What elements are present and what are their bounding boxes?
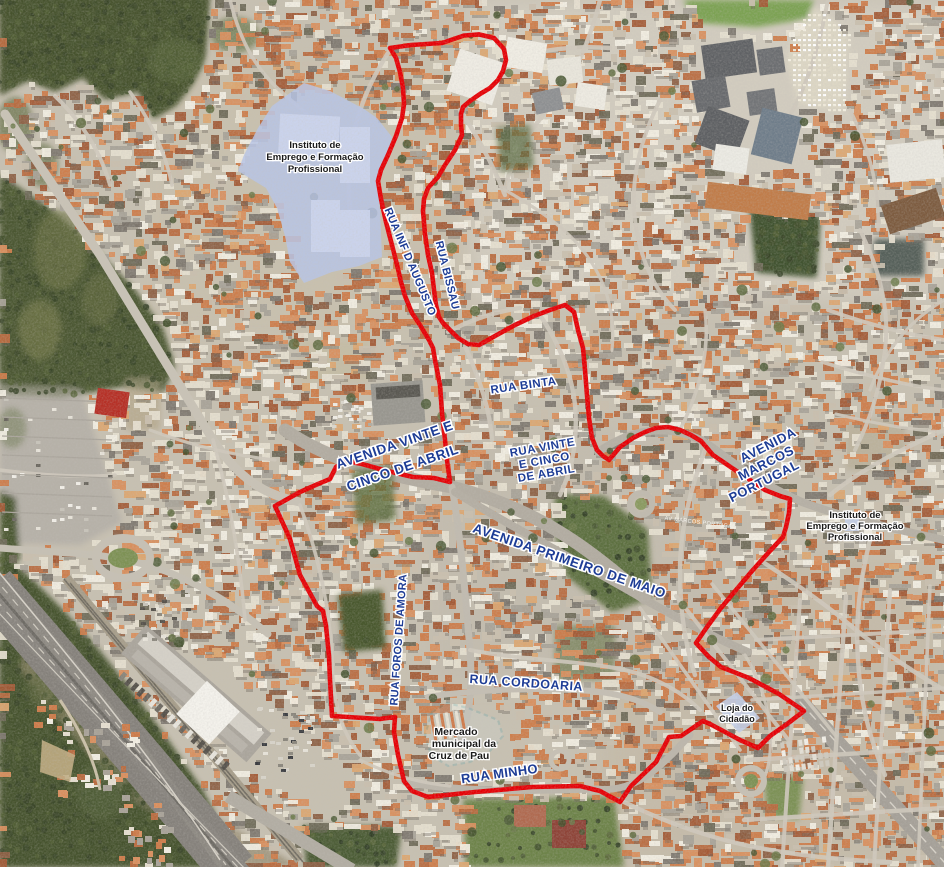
svg-text:municipal da: municipal da: [432, 738, 496, 750]
svg-text:Instituto de: Instituto de: [289, 140, 340, 151]
svg-text:Profissional: Profissional: [828, 532, 882, 543]
svg-text:Profissional: Profissional: [288, 164, 342, 175]
svg-text:Cruz de Pau: Cruz de Pau: [429, 750, 490, 762]
svg-text:Emprego e Formação: Emprego e Formação: [806, 521, 903, 532]
svg-text:Mercado: Mercado: [434, 726, 477, 738]
svg-text:Loja do: Loja do: [721, 703, 753, 713]
svg-text:Instituto de: Instituto de: [829, 510, 880, 521]
svg-text:Cidadão: Cidadão: [719, 714, 755, 724]
svg-text:Emprego e Formação: Emprego e Formação: [266, 152, 363, 163]
